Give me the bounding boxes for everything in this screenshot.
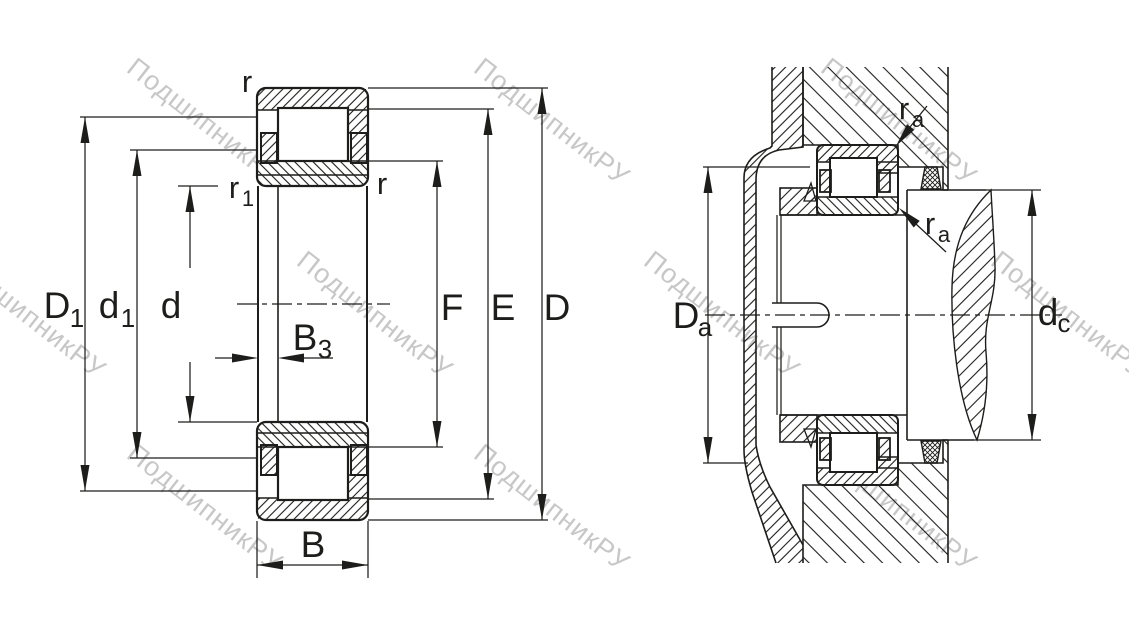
fillet-label-ra-bottom-sub: a — [938, 222, 951, 247]
dim-label-Da-sub: a — [698, 312, 713, 342]
dim-label-E: E — [491, 287, 516, 328]
dimension-B3: B 3 — [215, 317, 333, 364]
dim-label-d: d — [161, 285, 182, 326]
cage-section — [261, 133, 277, 163]
cage-section — [820, 438, 831, 460]
roller — [278, 108, 348, 161]
fillet-label-ra-bottom: r — [925, 206, 935, 241]
technical-drawing-page: ПодшипникРУ ПодшипникРУ ПодшипникРУ Подш… — [0, 0, 1129, 632]
inner-ring-hatch — [258, 161, 367, 185]
dimension-D: D — [368, 88, 570, 520]
dim-label-d1: d — [99, 285, 120, 326]
dim-label-dc: d — [1038, 292, 1059, 333]
dim-label-dc-sub: c — [1058, 308, 1071, 338]
cage-section — [261, 445, 277, 475]
mounted-bearing-bottom-section — [817, 415, 898, 485]
dim-label-D1: D — [44, 285, 71, 326]
dim-label-B3-sub: 3 — [318, 334, 332, 364]
cage-section — [351, 445, 367, 475]
cage-section — [879, 170, 890, 192]
seal-ring-top — [921, 167, 941, 189]
bearing-bottom-section — [257, 422, 368, 520]
inner-ring-hatch — [818, 416, 897, 433]
dim-label-Da: D — [673, 295, 700, 336]
outer-ring-flange-hatch — [348, 475, 367, 498]
roller — [278, 447, 348, 500]
bearing-top-section — [257, 88, 368, 186]
fillet-label-r1: r — [229, 170, 239, 205]
fillet-label-ra-top-sub: a — [912, 107, 925, 132]
dim-label-B: B — [301, 524, 326, 565]
fillet-label-r1-sub: 1 — [242, 186, 254, 211]
bearing-drawing-canvas: D 1 d 1 d r r r 1 — [0, 0, 1129, 632]
right-view-mounting-example: D a d c r a r a — [673, 67, 1071, 563]
dim-label-D: D — [544, 287, 571, 328]
dimension-D1: D 1 — [44, 117, 257, 491]
roller — [830, 433, 877, 472]
roller — [830, 158, 877, 197]
fillet-label-r-right: r — [377, 166, 387, 201]
cage-section — [879, 438, 890, 460]
dimension-B: B — [257, 521, 368, 578]
cage-section — [351, 133, 367, 163]
dim-label-D1-sub: 1 — [70, 303, 84, 333]
inner-ring-hatch — [258, 423, 367, 447]
cage-section — [820, 170, 831, 192]
left-view-bearing-cross-section: D 1 d 1 d r r r 1 — [44, 64, 571, 578]
dim-label-F: F — [441, 287, 464, 328]
fillet-label-ra-top: r — [899, 91, 909, 126]
outer-ring-hatch — [258, 498, 367, 519]
inner-ring-hatch — [818, 197, 897, 214]
outer-ring-hatch — [258, 89, 367, 110]
mounted-bearing-top-section — [817, 145, 898, 215]
dim-label-B3: B — [293, 317, 318, 358]
seal-ring-bottom — [921, 441, 941, 463]
dim-label-d1-sub: 1 — [121, 303, 135, 333]
outer-ring-flange-hatch — [348, 110, 367, 133]
fillet-label-r-top: r — [242, 64, 252, 99]
